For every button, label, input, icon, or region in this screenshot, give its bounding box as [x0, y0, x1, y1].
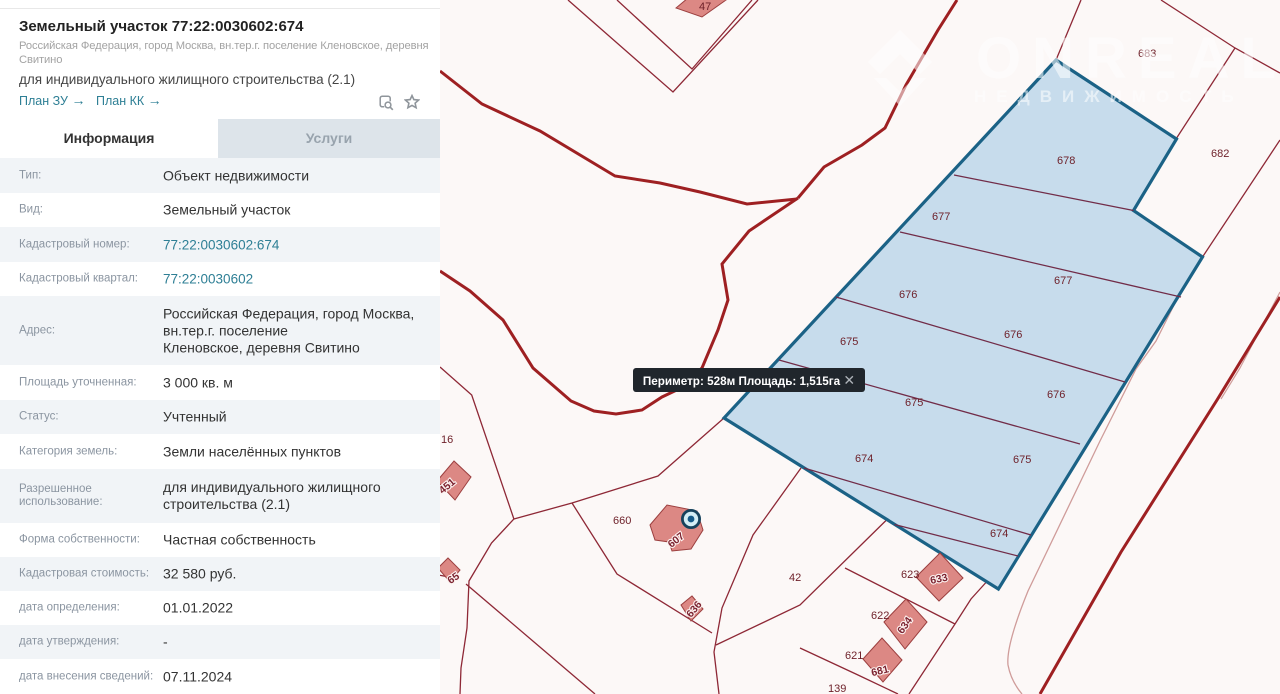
svg-text:676: 676	[1047, 389, 1065, 401]
svg-text:660: 660	[613, 515, 631, 527]
svg-text:677: 677	[1054, 275, 1072, 287]
svg-text:42: 42	[789, 572, 801, 584]
svg-text:678: 678	[1057, 155, 1075, 167]
svg-text:676: 676	[899, 289, 917, 301]
svg-text:621: 621	[845, 650, 863, 662]
svg-text:47: 47	[699, 1, 711, 13]
svg-text:675: 675	[905, 397, 923, 409]
svg-text:622: 622	[871, 610, 889, 622]
svg-text:674: 674	[990, 528, 1008, 540]
svg-text:НЕДВИЖИМОСТЬ: НЕДВИЖИМОСТЬ	[974, 87, 1244, 106]
svg-text:139: 139	[828, 683, 846, 694]
svg-text:677: 677	[932, 211, 950, 223]
svg-text:ONREALT: ONREALT	[976, 26, 1280, 91]
svg-text:676: 676	[1004, 329, 1022, 341]
svg-text:675: 675	[1013, 454, 1031, 466]
svg-text:16: 16	[441, 434, 453, 446]
svg-text:675: 675	[840, 336, 858, 348]
svg-text:682: 682	[1211, 148, 1229, 160]
svg-text:674: 674	[855, 453, 873, 465]
svg-text:623: 623	[901, 569, 919, 581]
